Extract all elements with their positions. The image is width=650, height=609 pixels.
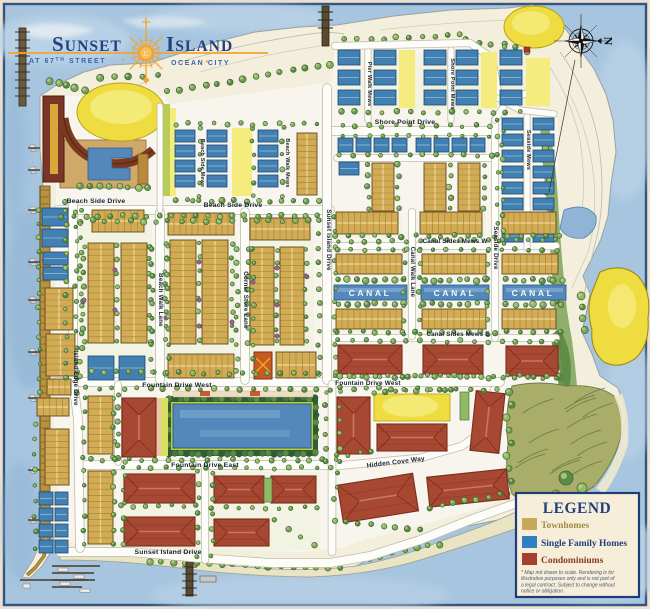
- svg-text:Island Edge Drive: Island Edge Drive: [72, 350, 79, 406]
- svg-text:Seaside Drive: Seaside Drive: [492, 226, 499, 270]
- svg-text:OCEAN CITY: OCEAN CITY: [171, 60, 230, 67]
- svg-text:Sunset Island Drive: Sunset Island Drive: [325, 209, 332, 271]
- svg-text:Sunset Island Drive: Sunset Island Drive: [135, 549, 202, 556]
- svg-text:notice or obligation.: notice or obligation.: [521, 589, 564, 595]
- svg-text:Single Family Homes: Single Family Homes: [541, 539, 627, 549]
- svg-text:Corner Store Lane: Corner Store Lane: [242, 271, 249, 329]
- svg-text:Beach Walk Mews: Beach Walk Mews: [284, 138, 290, 187]
- svg-text:a legal contract. Subject to c: a legal contract. Subject to change with…: [521, 582, 616, 588]
- svg-text:Beach Side Mews: Beach Side Mews: [199, 139, 205, 187]
- svg-text:Townhomes: Townhomes: [541, 521, 590, 531]
- svg-text:illustrative purposes only and: illustrative purposes only and is not pa…: [521, 576, 615, 582]
- svg-text:Fountain Drive West: Fountain Drive West: [142, 382, 212, 389]
- svg-text:Beach Side Drive: Beach Side Drive: [67, 198, 126, 205]
- svg-text:AT 67TH STREET: AT 67TH STREET: [29, 57, 106, 65]
- svg-text:Canal Sides Mews E: Canal Sides Mews E: [426, 331, 489, 338]
- svg-text:Shore Point Drive: Shore Point Drive: [375, 119, 435, 126]
- svg-text:CANAL: CANAL: [434, 288, 477, 298]
- svg-text:* Map not drawn to scale. Rend: * Map not drawn to scale. Rendering is f…: [521, 570, 614, 576]
- svg-text:LEGEND: LEGEND: [543, 500, 611, 517]
- svg-text:CANAL: CANAL: [349, 288, 392, 298]
- svg-text:C: C: [144, 50, 149, 58]
- svg-text:Beach Walk Lane: Beach Walk Lane: [157, 273, 164, 327]
- svg-text:Canal Walk Lane: Canal Walk Lane: [409, 247, 415, 298]
- svg-text:Shore Point Mews: Shore Point Mews: [449, 58, 455, 109]
- svg-text:Fountain Drive East: Fountain Drive East: [171, 462, 239, 469]
- svg-text:Fountain Drive West: Fountain Drive West: [335, 380, 401, 387]
- svg-text:Pier Walk Mews: Pier Walk Mews: [366, 62, 372, 107]
- svg-text:Seaside Mews: Seaside Mews: [525, 130, 531, 170]
- svg-text:CANAL: CANAL: [512, 288, 555, 298]
- svg-text:Canal Sides Mews W: Canal Sides Mews W: [423, 238, 488, 245]
- svg-text:Beach Side Drive: Beach Side Drive: [204, 202, 263, 209]
- svg-text:N: N: [601, 37, 615, 46]
- svg-text:Condominiums: Condominiums: [541, 556, 604, 566]
